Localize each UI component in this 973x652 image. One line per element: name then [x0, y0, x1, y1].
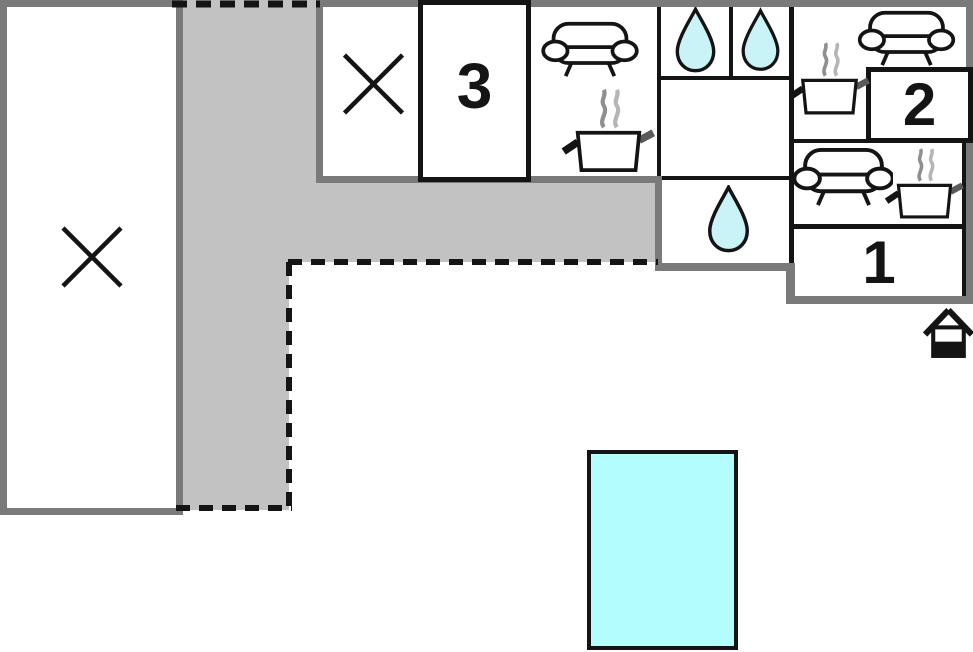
wall-right	[966, 0, 973, 303]
water-drop-icon	[675, 7, 716, 73]
sofa-icon	[541, 20, 639, 78]
entrance-house-icon	[923, 307, 973, 360]
water-drop-icon	[707, 185, 750, 253]
wall-black-4	[657, 176, 793, 180]
corridor-fill-lower	[183, 262, 289, 510]
swimming-pool	[587, 450, 738, 650]
floor-plan: 3 2 1	[0, 0, 973, 652]
sofa-icon	[855, 9, 958, 67]
wall-toprooms-left	[316, 0, 323, 183]
bedroom-1: 1	[795, 229, 963, 297]
sofa-icon	[794, 146, 893, 207]
cooking-pot-icon	[557, 88, 660, 172]
crossed-out-icon	[59, 225, 125, 289]
wall-step	[786, 263, 795, 304]
wall-black-2	[729, 2, 733, 78]
wall-black-3	[657, 76, 793, 80]
wall-bath-bottom	[655, 263, 795, 271]
wall-top	[316, 0, 973, 7]
bedroom-2: 2	[866, 67, 973, 143]
water-drop-icon	[741, 7, 780, 73]
bedroom-3: 3	[418, 0, 531, 182]
bedroom-2-number: 2	[903, 75, 936, 135]
bedroom-3-number: 3	[457, 54, 493, 118]
wall-apartment-bottom	[787, 296, 973, 304]
cooking-pot-icon	[885, 140, 964, 226]
wall-corridor-end	[655, 176, 662, 270]
cooking-pot-icon	[789, 33, 870, 123]
bedroom-1-number: 1	[862, 233, 895, 293]
crossed-out-icon	[340, 52, 407, 116]
corridor-fill-horizontal	[183, 183, 655, 262]
